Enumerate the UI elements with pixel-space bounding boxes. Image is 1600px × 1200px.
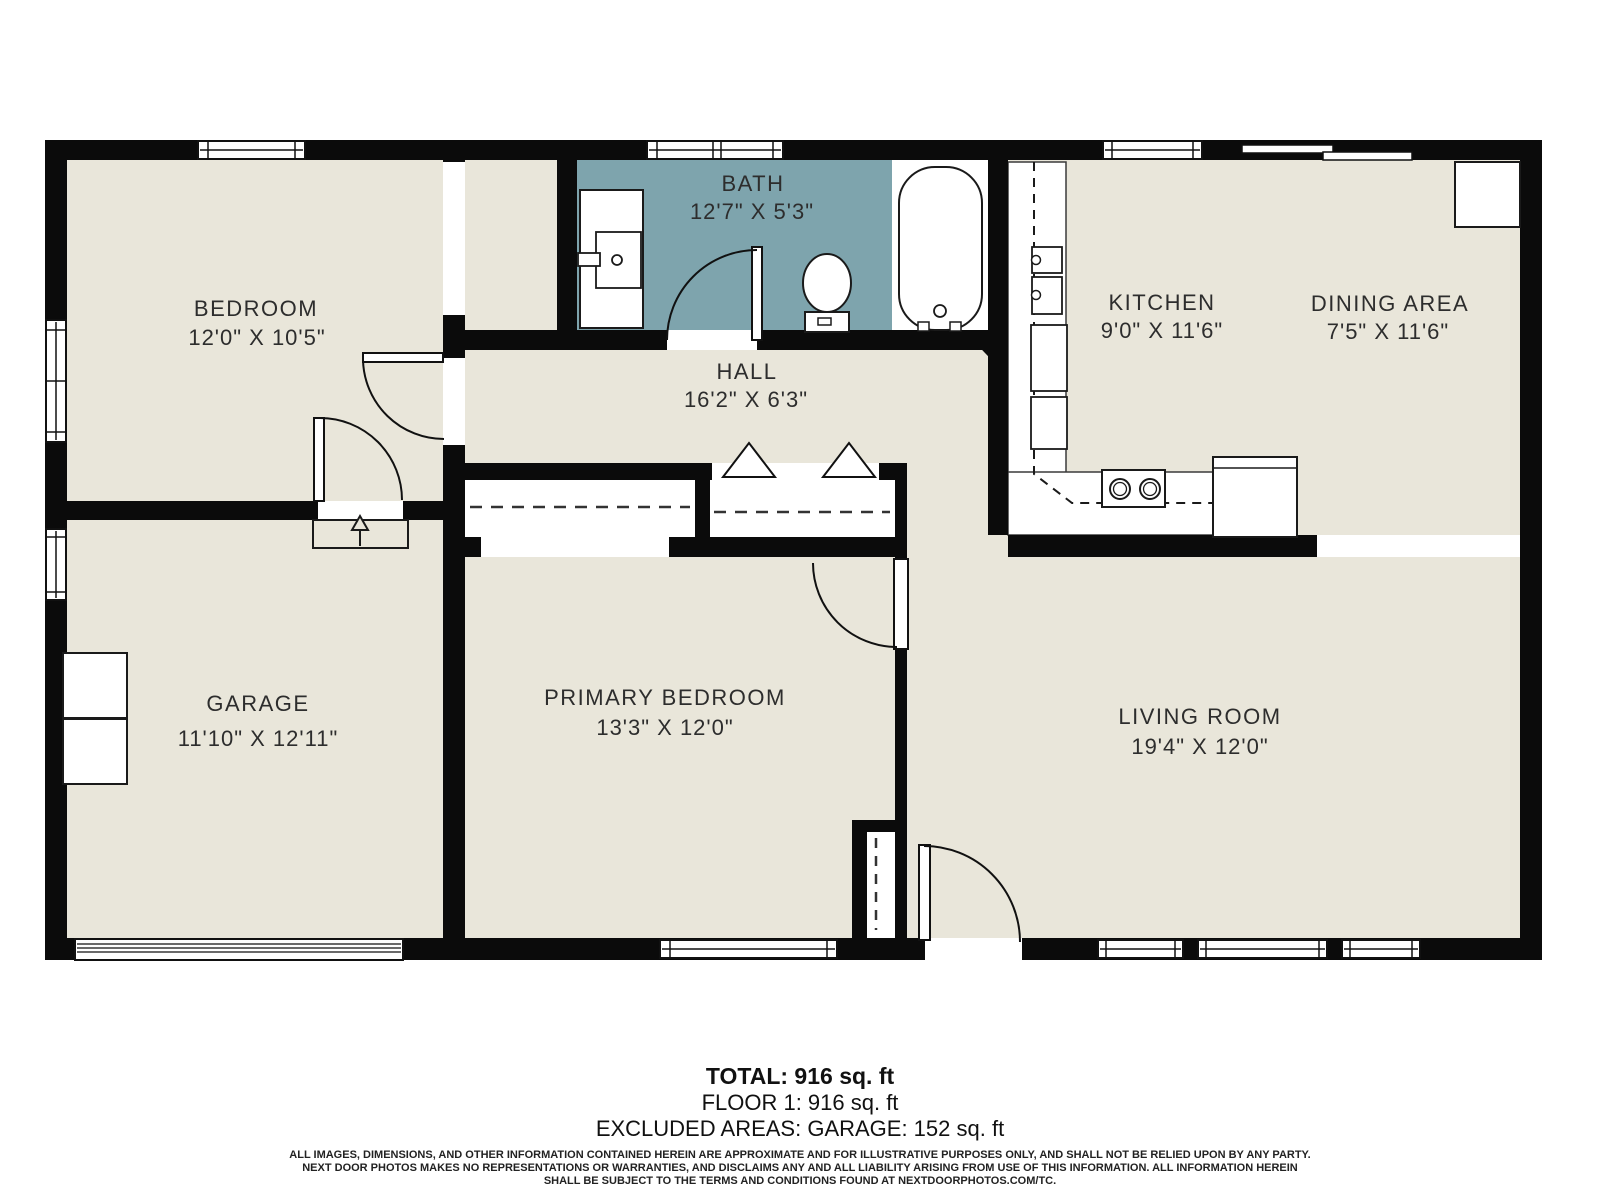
kitchen-label: KITCHEN — [1108, 290, 1215, 315]
kitchen-cabinet-2 — [1031, 397, 1067, 449]
kitchen-island-cabinet — [1213, 457, 1297, 537]
bedroom-dims: 12'0" X 10'5" — [188, 325, 325, 350]
primary-door-leaf — [894, 559, 908, 649]
burner-inner-1 — [1114, 483, 1127, 496]
wall-coat-closet-left — [852, 832, 867, 938]
burner-inner-2 — [1144, 483, 1157, 496]
opening-bedroom-door — [443, 358, 465, 445]
floor-area-text: FLOOR 1: 916 sq. ft — [702, 1090, 899, 1115]
hall-closet-floor — [710, 480, 895, 537]
kitchen-dims: 9'0" X 11'6" — [1101, 318, 1223, 343]
window-bath-top — [647, 141, 783, 159]
wall-outer-right — [1520, 140, 1542, 960]
garage-dims: 11'10" X 12'11" — [178, 726, 339, 751]
window-living-bottom-1 — [1098, 940, 1183, 958]
wall-hall-living — [895, 463, 907, 938]
tub-faucet-icon — [934, 305, 946, 317]
living-label: LIVING ROOM — [1118, 704, 1281, 729]
summary-block: TOTAL: 916 sq. ft FLOOR 1: 916 sq. ft EX… — [289, 1063, 1310, 1187]
window-kitchen-top — [1103, 141, 1202, 159]
window-bedroom-top — [198, 141, 305, 159]
window-living-bottom-3 — [1342, 940, 1420, 958]
garage-label: GARAGE — [206, 691, 309, 716]
kitchen-cabinet-1 — [1031, 325, 1067, 391]
total-area-text: TOTAL: 916 sq. ft — [706, 1063, 895, 1089]
wall-garage-primary — [443, 517, 465, 938]
floor-plan: BEDROOM 12'0" X 10'5" BATH 12'7" X 5'3" … — [0, 0, 1600, 1200]
tub-handle-right — [950, 322, 961, 331]
opening-dining-living — [1317, 535, 1520, 557]
window-primary-bottom — [660, 940, 837, 958]
kitchen-faucet-icon-2 — [1032, 291, 1041, 300]
garage-appliance-1 — [63, 653, 127, 718]
dining-dims: 7'5" X 11'6" — [1327, 319, 1449, 344]
bath-label: BATH — [721, 171, 784, 196]
wall-closet-bath — [557, 160, 577, 350]
living-dims: 19'4" X 12'0" — [1131, 734, 1268, 759]
garage-entry-door-leaf — [314, 418, 324, 501]
primary-label: PRIMARY BEDROOM — [544, 685, 786, 710]
disclaimer-line-1: ALL IMAGES, DIMENSIONS, AND OTHER INFORM… — [289, 1149, 1310, 1161]
window-living-bottom-2 — [1198, 940, 1327, 958]
wall-coat-closet-cap — [852, 820, 907, 832]
wall-closet-divider — [695, 463, 710, 557]
primary-dims: 13'3" X 12'0" — [596, 715, 733, 740]
dining-cabinet — [1455, 162, 1520, 227]
bath-door-leaf — [752, 247, 762, 340]
bedroom-door-leaf — [363, 353, 443, 362]
bedroom-label: BEDROOM — [194, 296, 318, 321]
excluded-area-text: EXCLUDED AREAS: GARAGE: 152 sq. ft — [596, 1116, 1004, 1141]
opening-entry-door — [925, 938, 1022, 960]
vanity-soap-tray — [578, 253, 600, 266]
kitchen-faucet-icon-1 — [1032, 256, 1041, 265]
disclaimer-line-3: SHALL BE SUBJECT TO THE TERMS AND CONDIT… — [544, 1175, 1056, 1187]
bath-dims: 12'7" X 5'3" — [690, 199, 814, 224]
coat-closet-floor — [867, 832, 895, 938]
disclaimer-line-2: NEXT DOOR PHOTOS MAKES NO REPRESENTATION… — [302, 1162, 1298, 1174]
opening-bedroom-closet — [443, 162, 465, 315]
vanity-faucet-icon — [612, 255, 622, 265]
toilet-button — [818, 318, 831, 325]
window-garage-left — [46, 529, 66, 600]
tub-handle-left — [918, 322, 929, 331]
entry-door-leaf — [919, 845, 930, 940]
hall-dims: 16'2" X 6'3" — [684, 387, 808, 412]
dining-label: DINING AREA — [1311, 291, 1469, 316]
toilet-bowl — [803, 254, 851, 312]
opening-bath-door — [667, 330, 757, 350]
hall-label: HALL — [716, 359, 777, 384]
garage-door — [75, 939, 403, 960]
window-bedroom-left — [46, 320, 66, 442]
opening-primary-closet — [481, 537, 669, 557]
garage-appliance-2 — [63, 719, 127, 784]
